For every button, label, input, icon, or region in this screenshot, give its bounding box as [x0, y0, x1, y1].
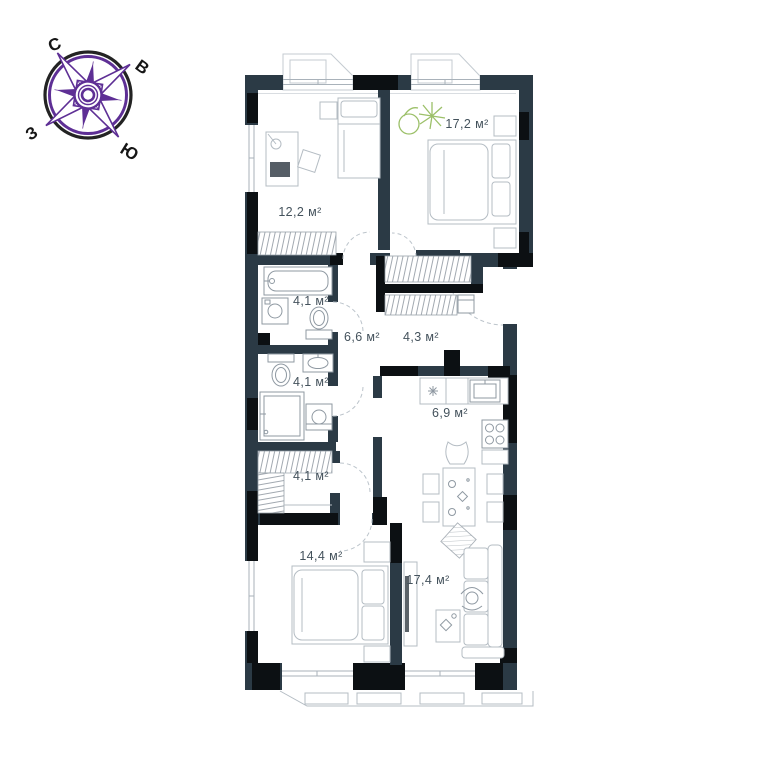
- pillow: [362, 606, 384, 640]
- compass-south-label: Ю: [117, 139, 142, 164]
- label-bedroom-bottom: 14,4 м²: [299, 549, 342, 563]
- shelf: [320, 102, 337, 119]
- washbasin-2: [306, 404, 332, 430]
- study-wardrobe-hatch: [258, 232, 336, 255]
- kitchen-sink: [470, 380, 500, 402]
- double-bed-bottom: [292, 566, 388, 644]
- coffee-table: [436, 610, 460, 642]
- label-living-room: 17,4 м²: [406, 573, 449, 587]
- plant-icon: [399, 102, 445, 134]
- double-bed-top: [428, 140, 516, 224]
- compass-east-label: В: [132, 56, 153, 79]
- balcony-bottom: [280, 691, 533, 706]
- single-bed: [338, 98, 380, 178]
- bathroom-2-fixtures: [260, 354, 333, 440]
- kitchen-unit: [482, 450, 508, 464]
- sink-2: [303, 354, 333, 372]
- living-room-furniture: [404, 545, 504, 658]
- shower-cabin: [260, 392, 304, 440]
- bathtub: [264, 267, 332, 295]
- door-bedroom-top: [392, 233, 416, 257]
- sofa: [462, 545, 504, 658]
- nightstand: [364, 646, 390, 662]
- toilet-2: [268, 354, 294, 386]
- label-kitchen: 6,9 м²: [432, 406, 468, 420]
- label-wardrobe: 4,1 м²: [293, 469, 329, 483]
- label-hallway: 6,6 м²: [344, 330, 380, 344]
- decor-vase: [446, 442, 468, 464]
- door-study: [343, 232, 370, 259]
- door-wardrobe: [340, 463, 370, 493]
- toilet-1: [306, 307, 332, 339]
- compass-north-label: С: [45, 33, 64, 55]
- stove: [482, 420, 508, 448]
- water-heater: [458, 295, 474, 313]
- pillow: [492, 144, 510, 178]
- door-bathroom-1: [333, 302, 363, 332]
- hob-symbol: [428, 386, 438, 396]
- washing-machine: [262, 298, 288, 324]
- pillow: [362, 570, 384, 604]
- nightstand: [364, 542, 390, 562]
- chair: [487, 502, 503, 522]
- nightstand: [494, 228, 516, 248]
- compass-west-label: З: [22, 123, 41, 145]
- chair: [487, 474, 503, 494]
- laptop: [270, 162, 290, 177]
- pillow: [492, 182, 510, 216]
- label-entry-hall: 4,3 м²: [403, 330, 439, 344]
- label-bedroom-top: 17,2 м²: [445, 117, 488, 131]
- nightstand: [494, 116, 516, 136]
- dining-table: [443, 468, 475, 526]
- chair: [423, 474, 439, 494]
- chair: [423, 502, 439, 522]
- desk-chair: [298, 150, 321, 173]
- entry-hall-wardrobes: [383, 256, 483, 315]
- label-bathroom-1: 4,1 м²: [293, 294, 329, 308]
- compass-rose: С В З Ю: [15, 22, 160, 167]
- desk: [266, 132, 298, 186]
- door-bathroom-2: [333, 386, 363, 416]
- label-study: 12,2 м²: [278, 205, 321, 219]
- study-furniture: [258, 98, 380, 255]
- kitchen-furniture: [420, 378, 508, 464]
- floor-plan-canvas: С В З Ю: [0, 0, 768, 768]
- kitchen-counter: [420, 378, 508, 404]
- label-bathroom-2: 4,1 м²: [293, 375, 329, 389]
